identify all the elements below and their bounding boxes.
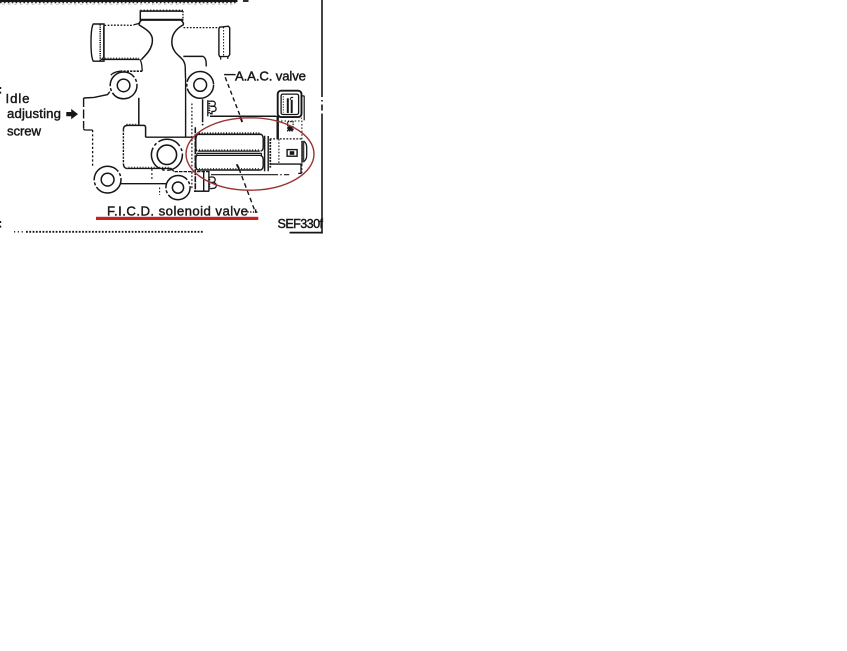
svg-text:screw: screw — [7, 123, 41, 138]
svg-text:adjusting: adjusting — [7, 106, 61, 121]
svg-text:SEF330f: SEF330f — [278, 217, 324, 231]
svg-text:A.A.C. valve: A.A.C. valve — [235, 69, 306, 84]
svg-text:Idle: Idle — [6, 91, 30, 106]
svg-text:F.I.C.D. solenoid valve: F.I.C.D. solenoid valve — [107, 203, 248, 218]
